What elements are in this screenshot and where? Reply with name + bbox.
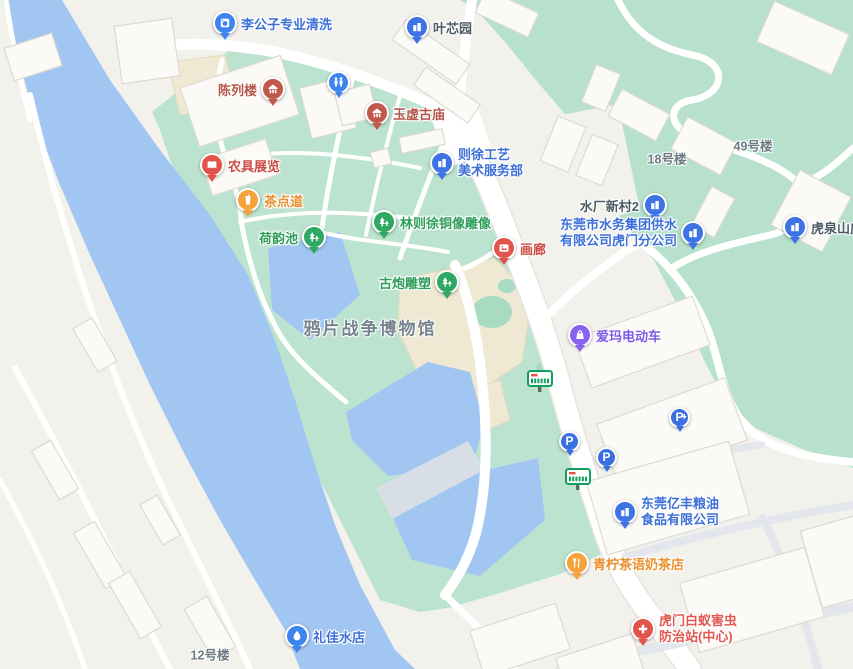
picture-icon[interactable] xyxy=(492,236,516,260)
building-icon[interactable] xyxy=(613,500,637,524)
water-drop-icon[interactable] xyxy=(285,624,309,648)
poi-label[interactable]: 玉虚古庙 xyxy=(393,104,445,123)
building-icon[interactable] xyxy=(643,193,667,217)
poi-label[interactable]: 荷韵池 xyxy=(259,228,298,247)
bus-stop-icon[interactable] xyxy=(565,468,591,492)
poi-label[interactable]: 青柠茶语奶茶店 xyxy=(593,554,684,573)
trees-icon[interactable] xyxy=(302,225,326,249)
open-book-icon[interactable] xyxy=(200,153,224,177)
area-label-museum: 鸦片战争博物馆 xyxy=(304,315,437,340)
washing-machine-icon[interactable] xyxy=(213,11,237,35)
poi-label[interactable]: 虎门白蚁害虫 防治站(中心) xyxy=(659,613,737,645)
map-canvas[interactable]: 鸦片战争博物馆 李公子专业清洗 叶芯园 陈列楼 玉虚古庙 xyxy=(0,0,853,669)
poi-label[interactable]: 农具展览 xyxy=(228,156,280,175)
poi-label[interactable]: 李公子专业清洗 xyxy=(241,14,332,33)
building-icon[interactable] xyxy=(783,215,807,239)
medical-cross-icon[interactable] xyxy=(631,617,655,641)
building-label-49: 49号楼 xyxy=(734,136,773,155)
poi-label[interactable]: 东莞亿丰粮油 食品有限公司 xyxy=(641,496,719,528)
poi-label[interactable]: 礼佳水店 xyxy=(313,627,365,646)
poi-label[interactable]: 古炮雕塑 xyxy=(379,273,431,292)
toilet-icon[interactable] xyxy=(327,71,350,94)
parking-charging-icon[interactable]: P xyxy=(669,407,690,428)
fork-knife-icon[interactable] xyxy=(565,551,589,575)
poi-label[interactable]: 爱玛电动车 xyxy=(596,326,661,345)
bus-stop-icon[interactable] xyxy=(527,370,553,394)
parking-icon[interactable]: P xyxy=(559,431,580,452)
trees-icon[interactable] xyxy=(435,270,459,294)
parking-icon[interactable]: P xyxy=(596,447,617,468)
trees-icon[interactable] xyxy=(372,210,396,234)
poi-label[interactable]: 林则徐铜像雕像 xyxy=(400,213,491,232)
poi-label[interactable]: 东莞市水务集团供水 有限公司虎门分公司 xyxy=(560,217,677,249)
building-label-18: 18号楼 xyxy=(648,149,687,168)
poi-label[interactable]: 茶点道 xyxy=(264,191,303,210)
poi-label[interactable]: 画廊 xyxy=(520,239,546,258)
pavilion-icon[interactable] xyxy=(261,77,285,101)
building-icon[interactable] xyxy=(405,15,429,39)
building-icon[interactable] xyxy=(430,151,454,175)
poi-label[interactable]: 虎泉山庄 xyxy=(811,218,853,237)
building-icon[interactable] xyxy=(681,221,705,245)
poi-label[interactable]: 陈列楼 xyxy=(218,80,257,99)
building-label-12: 12号楼 xyxy=(191,645,230,664)
poi-label[interactable]: 水厂新村2 xyxy=(580,196,639,215)
shopping-bag-icon[interactable] xyxy=(568,323,592,347)
poi-label[interactable]: 则徐工艺 美术服务部 xyxy=(458,147,523,179)
pavilion-icon[interactable] xyxy=(365,101,389,125)
drink-cup-icon[interactable] xyxy=(236,188,260,212)
poi-label[interactable]: 叶芯园 xyxy=(433,18,472,37)
lightning-bolt-icon xyxy=(682,413,687,422)
